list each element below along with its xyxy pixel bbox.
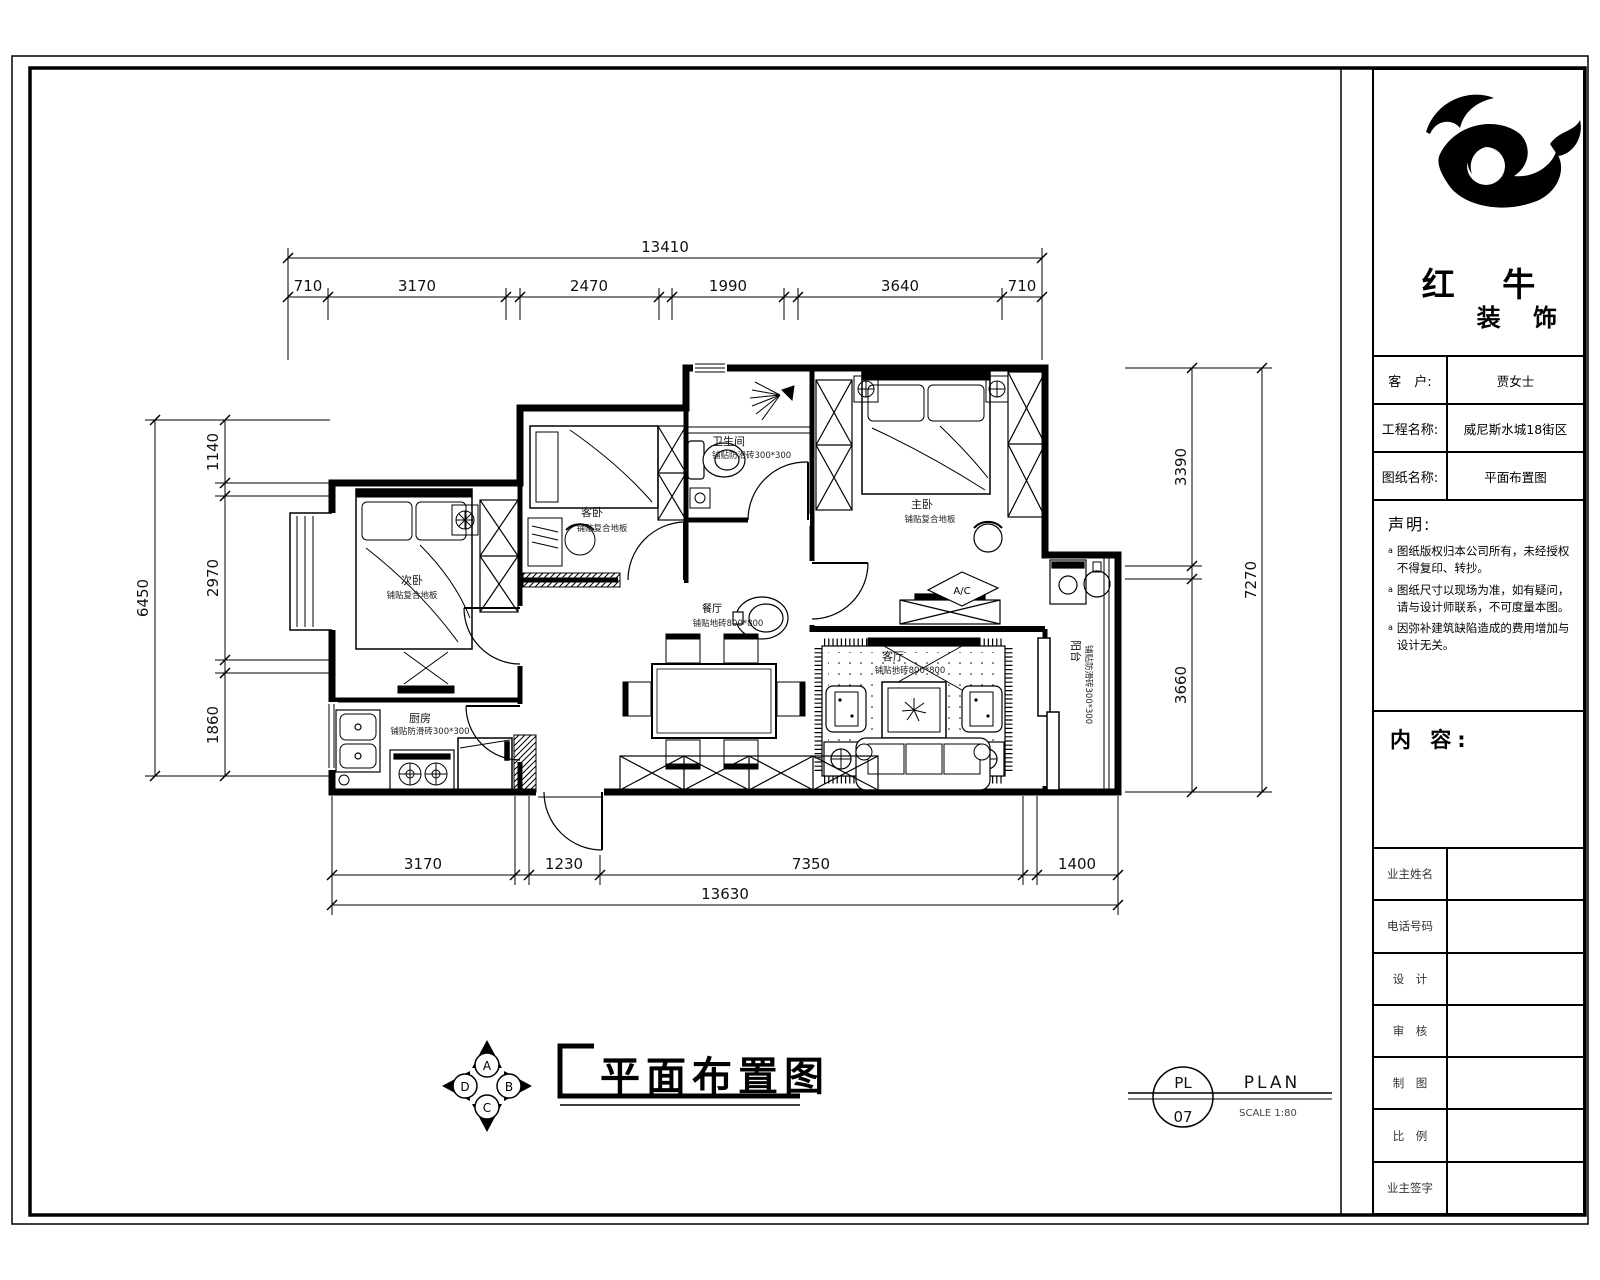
field-label: 客 户: <box>1374 357 1448 403</box>
dim-value: 3170 <box>404 855 442 873</box>
room-label: 客卧 <box>581 505 603 519</box>
ac-label: A/C <box>953 586 970 597</box>
room-spec: 铺贴地砖800*800 <box>875 665 946 676</box>
info-label: 审 核 <box>1374 1006 1448 1056</box>
dimension-top <box>283 248 1047 360</box>
dimension-left-labels: 6450 1140 2970 1860 <box>134 433 222 744</box>
dim-value: 1860 <box>204 706 222 744</box>
wash-basin-icon <box>733 597 788 639</box>
title-block: 红 牛 装 饰 客 户: 贾女士 工程名称: 威尼斯水城18街区 图纸名称: 平… <box>1372 68 1585 1215</box>
chair-master <box>974 522 1002 552</box>
info-label: 比 例 <box>1374 1110 1448 1160</box>
info-value <box>1448 1006 1583 1056</box>
statement-text: 图纸版权归本公司所有，未经授权不得复印、转抄。 <box>1397 543 1575 578</box>
room-spec: 铺贴防滑砖300*300 <box>390 726 469 737</box>
field-value: 贾女士 <box>1448 357 1583 403</box>
stove <box>390 750 454 790</box>
field-row-drawing: 图纸名称: 平面布置图 <box>1374 451 1583 499</box>
sliding-door <box>1038 638 1059 790</box>
room-spec: 铺贴复合地板 <box>576 523 628 534</box>
tv-secondary-icon <box>398 652 454 693</box>
dim-value: 3640 <box>881 277 919 295</box>
statement-marker: a <box>1388 622 1393 655</box>
statement-section: 声明: a 图纸版权归本公司所有，未经授权不得复印、转抄。 a 图纸尺寸以现场为… <box>1374 499 1583 710</box>
room-label: 厨房 <box>409 712 431 725</box>
dim-value: 1230 <box>545 855 583 873</box>
compass-letter-b: B <box>505 1080 513 1094</box>
room-spec: 铺贴防滑砖300*300 <box>1083 645 1094 724</box>
drawing-title-group: 平面布置图 <box>560 1046 830 1105</box>
drawing-title: 平面布置图 <box>600 1054 830 1100</box>
info-row-owner-signature: 业主签字 <box>1374 1161 1583 1213</box>
statement-marker: a <box>1388 584 1393 617</box>
dim-value: 3390 <box>1172 448 1190 486</box>
room-spec: 铺贴防滑砖300*300 <box>712 450 791 461</box>
wardrobe-master-west <box>816 380 852 510</box>
info-row-draft: 制 图 <box>1374 1056 1583 1108</box>
statement-text: 图纸尺寸以现场为准，如有疑问，请与设计师联系，不可度量本图。 <box>1397 582 1575 617</box>
info-label: 设 计 <box>1374 954 1448 1004</box>
drawing-sheet: A/C <box>0 0 1600 1280</box>
washing-machine <box>1050 560 1086 604</box>
room-label: 卫生间 <box>712 434 745 448</box>
ac-symbol: A/C <box>928 572 998 606</box>
info-value <box>1448 1110 1583 1160</box>
fridge <box>458 738 512 790</box>
dim-value: 1990 <box>709 277 747 295</box>
room-label: 主卧 <box>911 498 933 511</box>
wardrobe-guest <box>658 426 686 520</box>
dining-table <box>652 664 776 738</box>
armchair-right <box>962 686 1002 732</box>
info-value <box>1448 954 1583 1004</box>
info-value <box>1448 1058 1583 1108</box>
floor-plan-canvas: A/C <box>0 0 1600 1280</box>
info-label: 制 图 <box>1374 1058 1448 1108</box>
room-label: 次卧 <box>401 573 423 587</box>
compass-letter-d: D <box>460 1080 469 1094</box>
sheet-border <box>12 56 1588 1224</box>
room-label: 餐厅 <box>702 602 722 615</box>
field-label: 工程名称: <box>1374 405 1448 451</box>
stamp-name: PLAN <box>1244 1073 1300 1093</box>
dimension-bottom-labels: 3170 1230 7350 1400 13630 <box>404 855 1096 903</box>
room-spec: 铺贴复合地板 <box>386 590 438 601</box>
room-spec: 铺贴复合地板 <box>904 514 956 525</box>
info-value <box>1448 1163 1583 1213</box>
info-row-scale: 比 例 <box>1374 1108 1583 1160</box>
field-row-client: 客 户: 贾女士 <box>1374 355 1583 403</box>
info-label: 业主姓名 <box>1374 849 1448 899</box>
dimension-right-labels: 3390 3660 7270 <box>1172 448 1260 704</box>
dim-value: 1400 <box>1058 855 1096 873</box>
balcony-basin <box>1084 562 1110 597</box>
dimension-top-labels: 13410 710 3170 2470 1990 3640 710 <box>294 238 1037 295</box>
content-heading: 内 容: <box>1374 710 1583 847</box>
statement-item: a 图纸尺寸以现场为准，如有疑问，请与设计师联系，不可度量本图。 <box>1388 582 1575 617</box>
dim-value: 7270 <box>1242 561 1260 599</box>
compass-letter-a: A <box>483 1059 492 1073</box>
shower-icon <box>750 382 794 420</box>
dimension-left <box>145 415 330 781</box>
dim-value: 3170 <box>398 277 436 295</box>
info-row-review: 审 核 <box>1374 1004 1583 1056</box>
statement-text: 因弥补建筑缺陷造成的费用增加与设计无关。 <box>1397 620 1575 655</box>
dim-value: 1140 <box>204 433 222 471</box>
kitchen-drain-icon <box>339 775 349 785</box>
info-row-owner-name: 业主姓名 <box>1374 847 1583 899</box>
field-value: 平面布置图 <box>1448 453 1583 499</box>
stamp-number: 07 <box>1173 1108 1192 1126</box>
bed-guest <box>530 426 658 508</box>
signature-rows: 业主姓名 电话号码 设 计 审 核 制 图 比 例 业主签字 <box>1374 847 1583 1213</box>
wardrobe-master-east <box>1008 372 1045 517</box>
dim-value: 6450 <box>134 579 152 617</box>
armchair-left <box>826 686 866 732</box>
dim-value: 2470 <box>570 277 608 295</box>
bull-logo-icon <box>1374 70 1587 255</box>
dim-value: 13630 <box>701 885 749 903</box>
plan-stamp: PL 07 PLAN SCALE 1:80 <box>1128 1067 1332 1127</box>
dim-value: 13410 <box>641 238 689 256</box>
field-label: 图纸名称: <box>1374 453 1448 499</box>
room-label: 阳台 <box>1069 640 1083 662</box>
coffee-table <box>882 682 946 738</box>
company-name-suffix: 装 饰 <box>1477 298 1569 333</box>
dim-value: 3660 <box>1172 666 1190 704</box>
room-spec: 铺贴地砖800*800 <box>693 618 764 629</box>
nightstand-lamp-icon <box>452 505 478 535</box>
info-value <box>1448 901 1583 951</box>
stamp-scale: SCALE 1:80 <box>1239 1108 1297 1119</box>
company-logo-area: 红 牛 装 饰 <box>1374 70 1583 355</box>
compass: A B C D <box>442 1040 532 1132</box>
bed-secondary <box>356 489 472 649</box>
sofa <box>856 738 990 790</box>
room-label: 客厅 <box>882 649 904 663</box>
bed-master <box>862 372 990 494</box>
info-label: 业主签字 <box>1374 1163 1448 1213</box>
hatched-walls <box>514 573 620 792</box>
statement-marker: a <box>1388 545 1393 578</box>
statement-item: a 图纸版权归本公司所有，未经授权不得复印、转抄。 <box>1388 543 1575 578</box>
dim-value: 7350 <box>792 855 830 873</box>
dim-value: 2970 <box>204 559 222 597</box>
statement-heading: 声明: <box>1388 511 1575 535</box>
field-row-project: 工程名称: 威尼斯水城18街区 <box>1374 403 1583 451</box>
info-row-phone: 电话号码 <box>1374 899 1583 951</box>
statement-item: a 因弥补建筑缺陷造成的费用增加与设计无关。 <box>1388 620 1575 655</box>
kitchen-sink <box>336 710 380 772</box>
info-value <box>1448 849 1583 899</box>
stamp-code: PL <box>1174 1074 1192 1092</box>
compass-letter-c: C <box>483 1101 491 1115</box>
info-row-design: 设 计 <box>1374 952 1583 1004</box>
dim-value: 710 <box>294 277 323 295</box>
field-value: 威尼斯水城18街区 <box>1448 405 1583 451</box>
floor-drain-icon <box>690 488 710 508</box>
wardrobe-secondary <box>480 500 518 612</box>
dim-value: 710 <box>1008 277 1037 295</box>
title-block-fields: 客 户: 贾女士 工程名称: 威尼斯水城18街区 图纸名称: 平面布置图 <box>1374 355 1583 499</box>
info-label: 电话号码 <box>1374 901 1448 951</box>
